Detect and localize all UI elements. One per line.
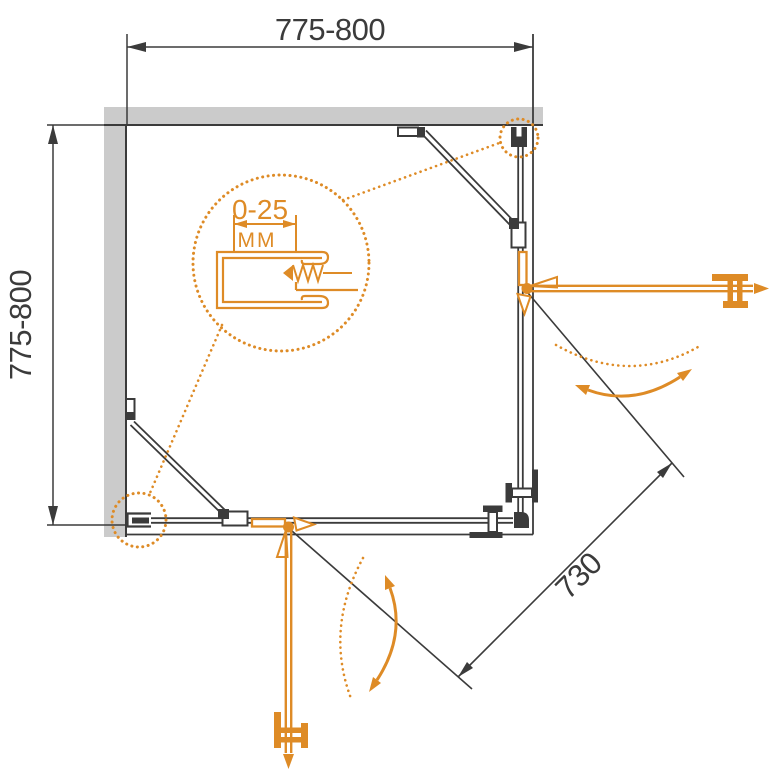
pivot-arm-upper bbox=[519, 252, 527, 285]
support-bar-top bbox=[398, 127, 526, 248]
handle-bar bbox=[274, 712, 281, 748]
door-leaf-open bbox=[286, 531, 291, 753]
handle-bar bbox=[301, 723, 308, 748]
dimension-diagonal: 730 bbox=[292, 293, 684, 689]
dimension-top-label: 775-800 bbox=[275, 12, 386, 47]
wall-bracket bbox=[398, 128, 418, 137]
walls bbox=[104, 107, 543, 537]
door-swing-direction-arrow-icon bbox=[283, 754, 294, 769]
pivot-point bbox=[283, 522, 294, 533]
glass-end bbox=[132, 518, 149, 524]
support-bar bbox=[131, 422, 227, 516]
handle-post bbox=[737, 281, 743, 301]
handle-outer-plate bbox=[532, 470, 538, 503]
corner-connector bbox=[514, 512, 529, 528]
swing-path-dotted-bottom bbox=[340, 558, 363, 701]
handle-bottom-door bbox=[470, 506, 503, 539]
screw-thread bbox=[293, 265, 323, 281]
dimension-diagonal-label: 730 bbox=[548, 545, 608, 605]
bottom-glass-closed bbox=[149, 518, 513, 523]
handle-stem bbox=[512, 489, 532, 498]
profile-outer-wall bbox=[217, 252, 322, 308]
handle-post bbox=[281, 737, 301, 743]
pivot-flap bbox=[294, 518, 314, 531]
glass-bracket-clamp bbox=[218, 509, 229, 519]
arrow-up-icon bbox=[48, 125, 58, 144]
unit-label: MM bbox=[238, 229, 277, 252]
corner-and-handles bbox=[470, 470, 539, 539]
arrow-right-icon bbox=[514, 42, 533, 52]
detail-callout: 0-25 MM bbox=[150, 142, 502, 493]
support-bar bbox=[422, 131, 516, 228]
handle-bar bbox=[712, 274, 748, 281]
swing-path-dotted-right bbox=[556, 345, 698, 366]
wall-bracket-clamp bbox=[126, 412, 135, 420]
swing-arrow-left-icon bbox=[575, 385, 590, 395]
leader-to-bottom-left bbox=[150, 325, 222, 493]
door-bottom-open bbox=[252, 518, 314, 770]
swing-arrow-up-icon bbox=[385, 575, 395, 590]
diagram-canvas: 775-800 775-800 bbox=[0, 0, 777, 783]
arrow-down-icon bbox=[48, 506, 58, 525]
arrow-left-icon bbox=[127, 42, 146, 52]
swing-arrow-arc-bottom bbox=[377, 588, 396, 680]
support-bar-bottom bbox=[126, 399, 248, 526]
glass-panels-closed bbox=[127, 147, 533, 535]
handle-outer-plate bbox=[470, 532, 503, 538]
dimension-left-label: 775-800 bbox=[3, 270, 38, 381]
detail-arrow-right-icon bbox=[283, 220, 296, 228]
adjustment-range-label: 0-25 bbox=[232, 194, 288, 225]
door-swing-direction-arrow-icon bbox=[754, 283, 769, 294]
handle-post bbox=[281, 728, 301, 734]
glass-edge-line bbox=[296, 282, 358, 290]
pivot-arm-left bbox=[252, 519, 285, 527]
left-wall bbox=[104, 107, 126, 537]
extension-line-bottom bbox=[292, 531, 472, 689]
wall-profile-cross-section bbox=[217, 252, 358, 308]
handle-stem bbox=[489, 512, 498, 532]
pivot-flap bbox=[518, 294, 531, 314]
glass-bracket-clamp bbox=[509, 218, 519, 229]
top-wall bbox=[104, 107, 543, 125]
screw-tip-icon bbox=[283, 265, 293, 281]
handle-post bbox=[728, 281, 734, 301]
handle-right-door bbox=[506, 470, 539, 503]
handle-bar bbox=[723, 301, 748, 308]
extension-line-right bbox=[528, 293, 684, 477]
shower-enclosure-plan-diagram: 775-800 775-800 bbox=[0, 0, 777, 783]
profile-bar bbox=[511, 127, 517, 147]
profile-bar bbox=[522, 127, 528, 147]
glass-end bbox=[517, 137, 522, 148]
right-glass-closed bbox=[518, 147, 523, 513]
door-right-open bbox=[518, 252, 770, 314]
pivot-point bbox=[522, 283, 533, 294]
door-leaf-open bbox=[531, 286, 753, 291]
